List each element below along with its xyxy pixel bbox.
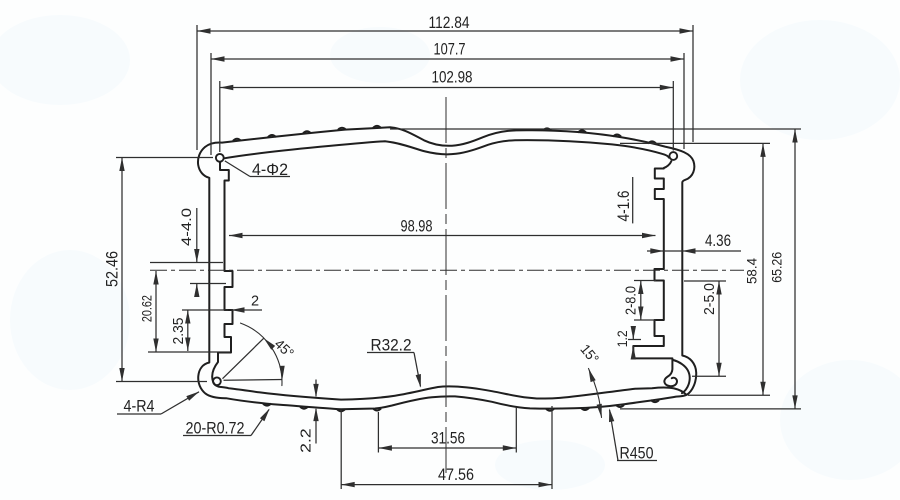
svg-text:20-R0.72: 20-R0.72: [186, 420, 245, 438]
svg-text:102.98: 102.98: [432, 68, 473, 86]
svg-text:2: 2: [251, 294, 259, 310]
svg-text:31.56: 31.56: [431, 430, 465, 448]
svg-text:20.62: 20.62: [139, 295, 155, 322]
svg-text:2.2: 2.2: [298, 428, 315, 453]
svg-text:4.36: 4.36: [705, 232, 731, 250]
svg-text:2.35: 2.35: [171, 318, 187, 345]
svg-text:4-R4: 4-R4: [124, 398, 155, 416]
svg-text:65.26: 65.26: [769, 252, 785, 283]
svg-text:4-1.6: 4-1.6: [615, 191, 633, 222]
svg-text:98.98: 98.98: [401, 217, 433, 235]
svg-text:1.2: 1.2: [614, 330, 630, 347]
svg-text:R450: R450: [620, 444, 654, 462]
svg-text:2-5.0: 2-5.0: [702, 283, 718, 315]
svg-text:107.7: 107.7: [434, 40, 466, 58]
svg-text:R32.2: R32.2: [371, 337, 412, 355]
svg-text:52.46: 52.46: [104, 251, 122, 287]
svg-text:47.56: 47.56: [438, 466, 474, 484]
svg-text:4-4.0: 4-4.0: [178, 208, 194, 246]
svg-text:112.84: 112.84: [429, 14, 470, 32]
svg-text:58.4: 58.4: [744, 258, 760, 284]
svg-text:2-8.0: 2-8.0: [624, 286, 640, 315]
